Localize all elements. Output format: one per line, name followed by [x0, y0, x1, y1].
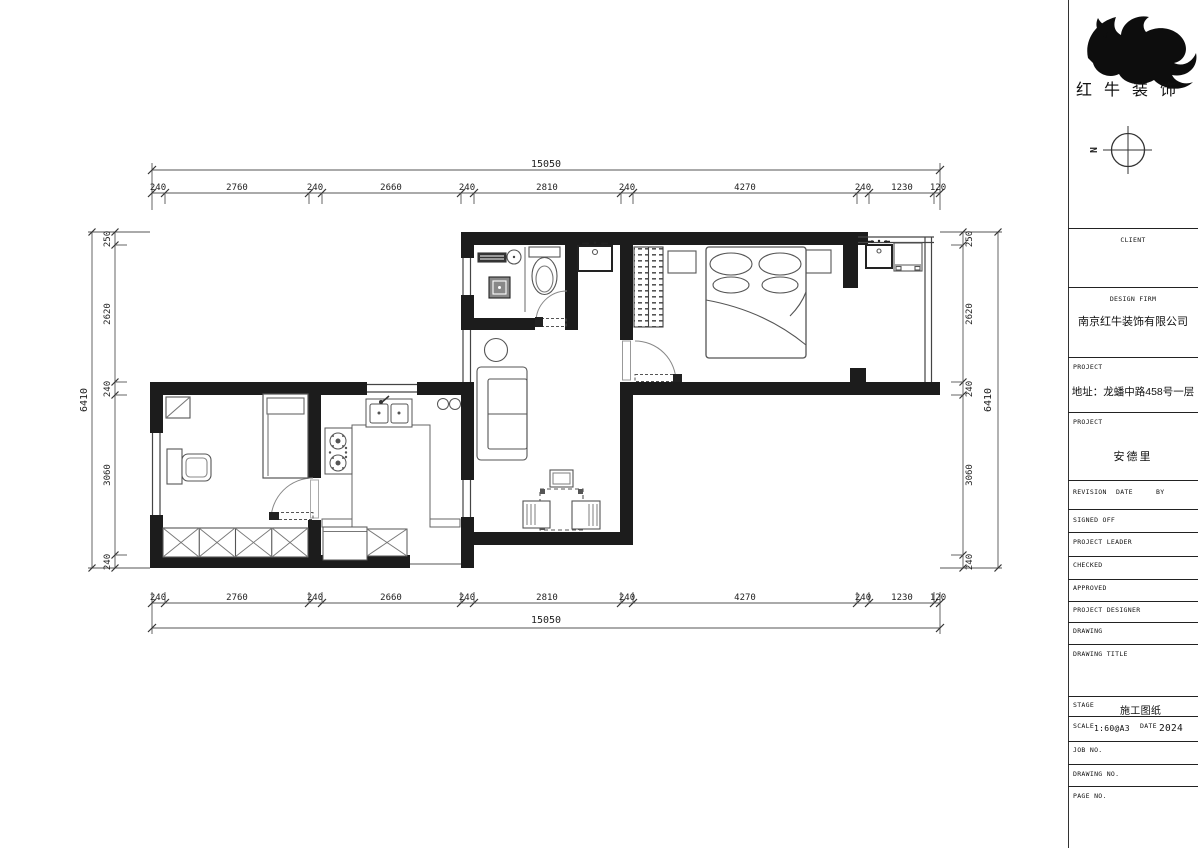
bathroom-fixtures	[478, 242, 612, 313]
divider	[1068, 764, 1198, 765]
stage-value: 施工图纸	[1120, 702, 1161, 717]
dim-label: 6410	[983, 388, 994, 412]
divider	[1068, 287, 1198, 288]
divider	[1068, 741, 1198, 742]
dim-label: 3060	[103, 464, 113, 486]
stage-label: STAGE	[1073, 701, 1094, 709]
drawing-no-label: DRAWING NO.	[1073, 770, 1119, 778]
approved-label: APPROVED	[1073, 584, 1107, 592]
project-designer-label: PROJECT DESIGNER	[1073, 606, 1140, 614]
scale-value: 1:60@A3	[1094, 724, 1130, 733]
dim-label: 2660	[380, 183, 402, 193]
dim-label: 250	[965, 231, 975, 247]
bath-shelf	[478, 253, 506, 262]
divider	[1068, 532, 1198, 533]
design-firm-name: 南京红牛装饰有限公司	[1068, 313, 1198, 329]
dim-label: 240	[619, 593, 635, 603]
scale-label: SCALE	[1073, 722, 1094, 730]
toilet-tank	[529, 247, 560, 257]
date-label: DATE	[1116, 488, 1133, 496]
date-label: DATE	[1140, 722, 1157, 730]
date-value: 2024	[1159, 723, 1183, 734]
dim-label: 4270	[734, 593, 756, 603]
floor-plan: 15050 240 2760 240 2660 240 2810 240 427…	[0, 0, 1200, 848]
divider	[1068, 228, 1198, 229]
dim-label: 240	[307, 593, 323, 603]
signed-off-label: SIGNED OFF	[1073, 516, 1115, 524]
design-firm-label: DESIGN FIRM	[1068, 295, 1198, 303]
single-bed	[263, 394, 308, 478]
dim-label: 1230	[891, 593, 913, 603]
divider	[1068, 579, 1198, 580]
dim-label: 240	[307, 183, 323, 193]
drawing-label: DRAWING	[1073, 627, 1103, 635]
dim-label: 240	[619, 183, 635, 193]
dim-label: 240	[459, 183, 475, 193]
dimensions-bottom: 15050 240 2760 240 2660 240 2810 240 427…	[148, 592, 946, 634]
divider	[1068, 556, 1198, 557]
divider	[1068, 509, 1198, 510]
page-no-label: PAGE NO.	[1073, 792, 1107, 800]
north-label: N	[1089, 147, 1100, 153]
client-label: CLIENT	[1068, 236, 1198, 244]
dim-label: 240	[103, 381, 113, 397]
dimensions-left: 6410 250 2620 240 3060 240	[79, 229, 150, 572]
dim-label: 2810	[536, 183, 558, 193]
dining-chair	[572, 501, 600, 529]
bedroom-furniture	[634, 247, 831, 358]
divider	[1068, 716, 1198, 717]
title-block-border	[1068, 0, 1069, 848]
side-table	[485, 339, 508, 362]
divider	[1068, 601, 1198, 602]
project-label: PROJECT	[1073, 418, 1103, 426]
dim-label: 240	[103, 554, 113, 570]
divider	[1068, 696, 1198, 697]
dim-label: 2660	[380, 593, 402, 603]
dim-label: 240	[855, 593, 871, 603]
second-bedroom-furniture	[163, 394, 308, 557]
dimensions-right: 6410 250 2620 240 3060 240	[940, 229, 1002, 572]
gas-stove	[325, 428, 352, 474]
dim-label: 1230	[891, 183, 913, 193]
dim-label: 120	[930, 593, 946, 603]
dim-label: 15050	[531, 159, 561, 170]
brand-name: 红牛装饰	[1076, 76, 1196, 100]
dim-label: 240	[150, 593, 166, 603]
kitchen-fixtures	[322, 396, 461, 560]
revision-label: REVISION	[1073, 488, 1107, 496]
by-label: BY	[1156, 488, 1164, 496]
project-name: 安德里	[1068, 448, 1198, 464]
dimensions-top: 15050 240 2760 240 2660 240 2810 240 427…	[148, 159, 946, 210]
nightstand	[806, 250, 831, 273]
living-furniture	[477, 339, 600, 531]
divider	[1068, 644, 1198, 645]
divider	[1068, 786, 1198, 787]
dim-label: 240	[965, 554, 975, 570]
desk	[167, 449, 182, 484]
divider	[1068, 622, 1198, 623]
project-address: 地址：龙蟠中路458号一层	[1068, 384, 1198, 399]
dim-label: 2620	[103, 303, 113, 325]
dim-label: 2760	[226, 593, 248, 603]
dim-label: 4270	[734, 183, 756, 193]
dim-label: 2620	[965, 303, 975, 325]
laundry-fixtures	[866, 240, 922, 271]
dim-label: 250	[103, 231, 113, 247]
job-no-label: JOB NO.	[1073, 746, 1103, 754]
hob-burner	[438, 399, 449, 410]
project-leader-label: PROJECT LEADER	[1073, 538, 1132, 546]
north-compass: N	[1089, 126, 1152, 174]
divider	[1068, 480, 1198, 481]
project-label: PROJECT	[1073, 363, 1103, 371]
dim-label: 120	[930, 183, 946, 193]
divider	[1068, 412, 1198, 413]
divider	[1068, 357, 1198, 358]
dim-label: 15050	[531, 615, 561, 626]
dim-label: 240	[459, 593, 475, 603]
dim-label: 3060	[965, 464, 975, 486]
counter	[352, 425, 430, 519]
laundry-sink	[866, 245, 892, 268]
dim-label: 240	[965, 381, 975, 397]
drawing-sheet: 15050 240 2760 240 2660 240 2810 240 427…	[0, 0, 1200, 848]
dim-label: 2810	[536, 593, 558, 603]
drawing-title-label: DRAWING TITLE	[1073, 650, 1128, 658]
dim-label: 2760	[226, 183, 248, 193]
hob-burner	[450, 399, 461, 410]
dim-label: 6410	[79, 388, 90, 412]
checked-label: CHECKED	[1073, 561, 1103, 569]
dim-label: 240	[150, 183, 166, 193]
dim-label: 240	[855, 183, 871, 193]
nightstand	[668, 251, 696, 273]
